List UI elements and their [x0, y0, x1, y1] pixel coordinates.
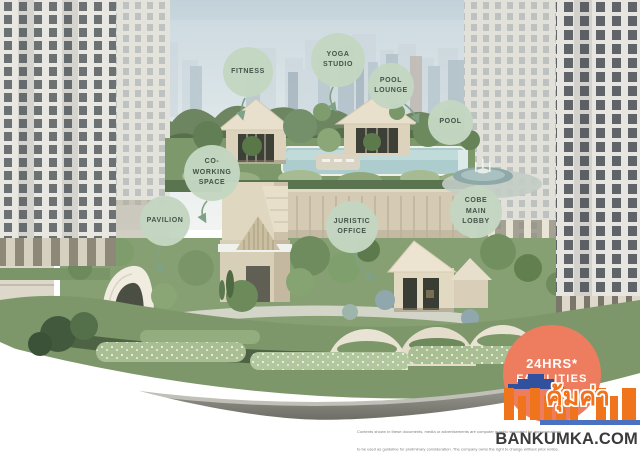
facility-badge-label: COBE MAIN LOBBY — [462, 196, 490, 228]
facility-badge-label: PAVILION — [147, 216, 184, 227]
marketing-render-page: FITNESS YOGA STUDIO POOL LOUNGE POOL CO-… — [0, 0, 640, 452]
facility-badge-label: JURISTIC OFFICE — [334, 217, 371, 238]
facility-badge-label: POOL — [439, 117, 461, 128]
right-tower — [556, 0, 640, 348]
badge-24hrs-line1: 24HRS* — [526, 356, 578, 371]
facility-badge-pavilion: PAVILION — [140, 196, 190, 246]
facility-badge-pool: POOL — [428, 100, 473, 145]
facility-badge-cobe-main-lobby: COBE MAIN LOBBY — [450, 186, 502, 238]
site-watermark: BANKUMKA.COM — [495, 430, 638, 449]
facility-badge-label: FITNESS — [231, 67, 265, 78]
facility-badge-label: YOGA STUDIO — [323, 50, 353, 71]
facility-badge-label: POOL LOUNGE — [374, 76, 408, 97]
facility-badge-juristic-office: JURISTIC OFFICE — [326, 201, 378, 253]
facility-badge-fitness: FITNESS — [223, 47, 273, 97]
facility-badge-co-working-space: CO- WORKING SPACE — [184, 145, 240, 201]
left-tower — [0, 0, 116, 266]
facility-badge-label: CO- WORKING SPACE — [193, 157, 232, 189]
facility-badge-pool-lounge: POOL LOUNGE — [368, 63, 414, 109]
thai-wordmark: คุ้มค่า — [546, 384, 610, 412]
facility-badge-yoga-studio: YOGA STUDIO — [311, 33, 365, 87]
